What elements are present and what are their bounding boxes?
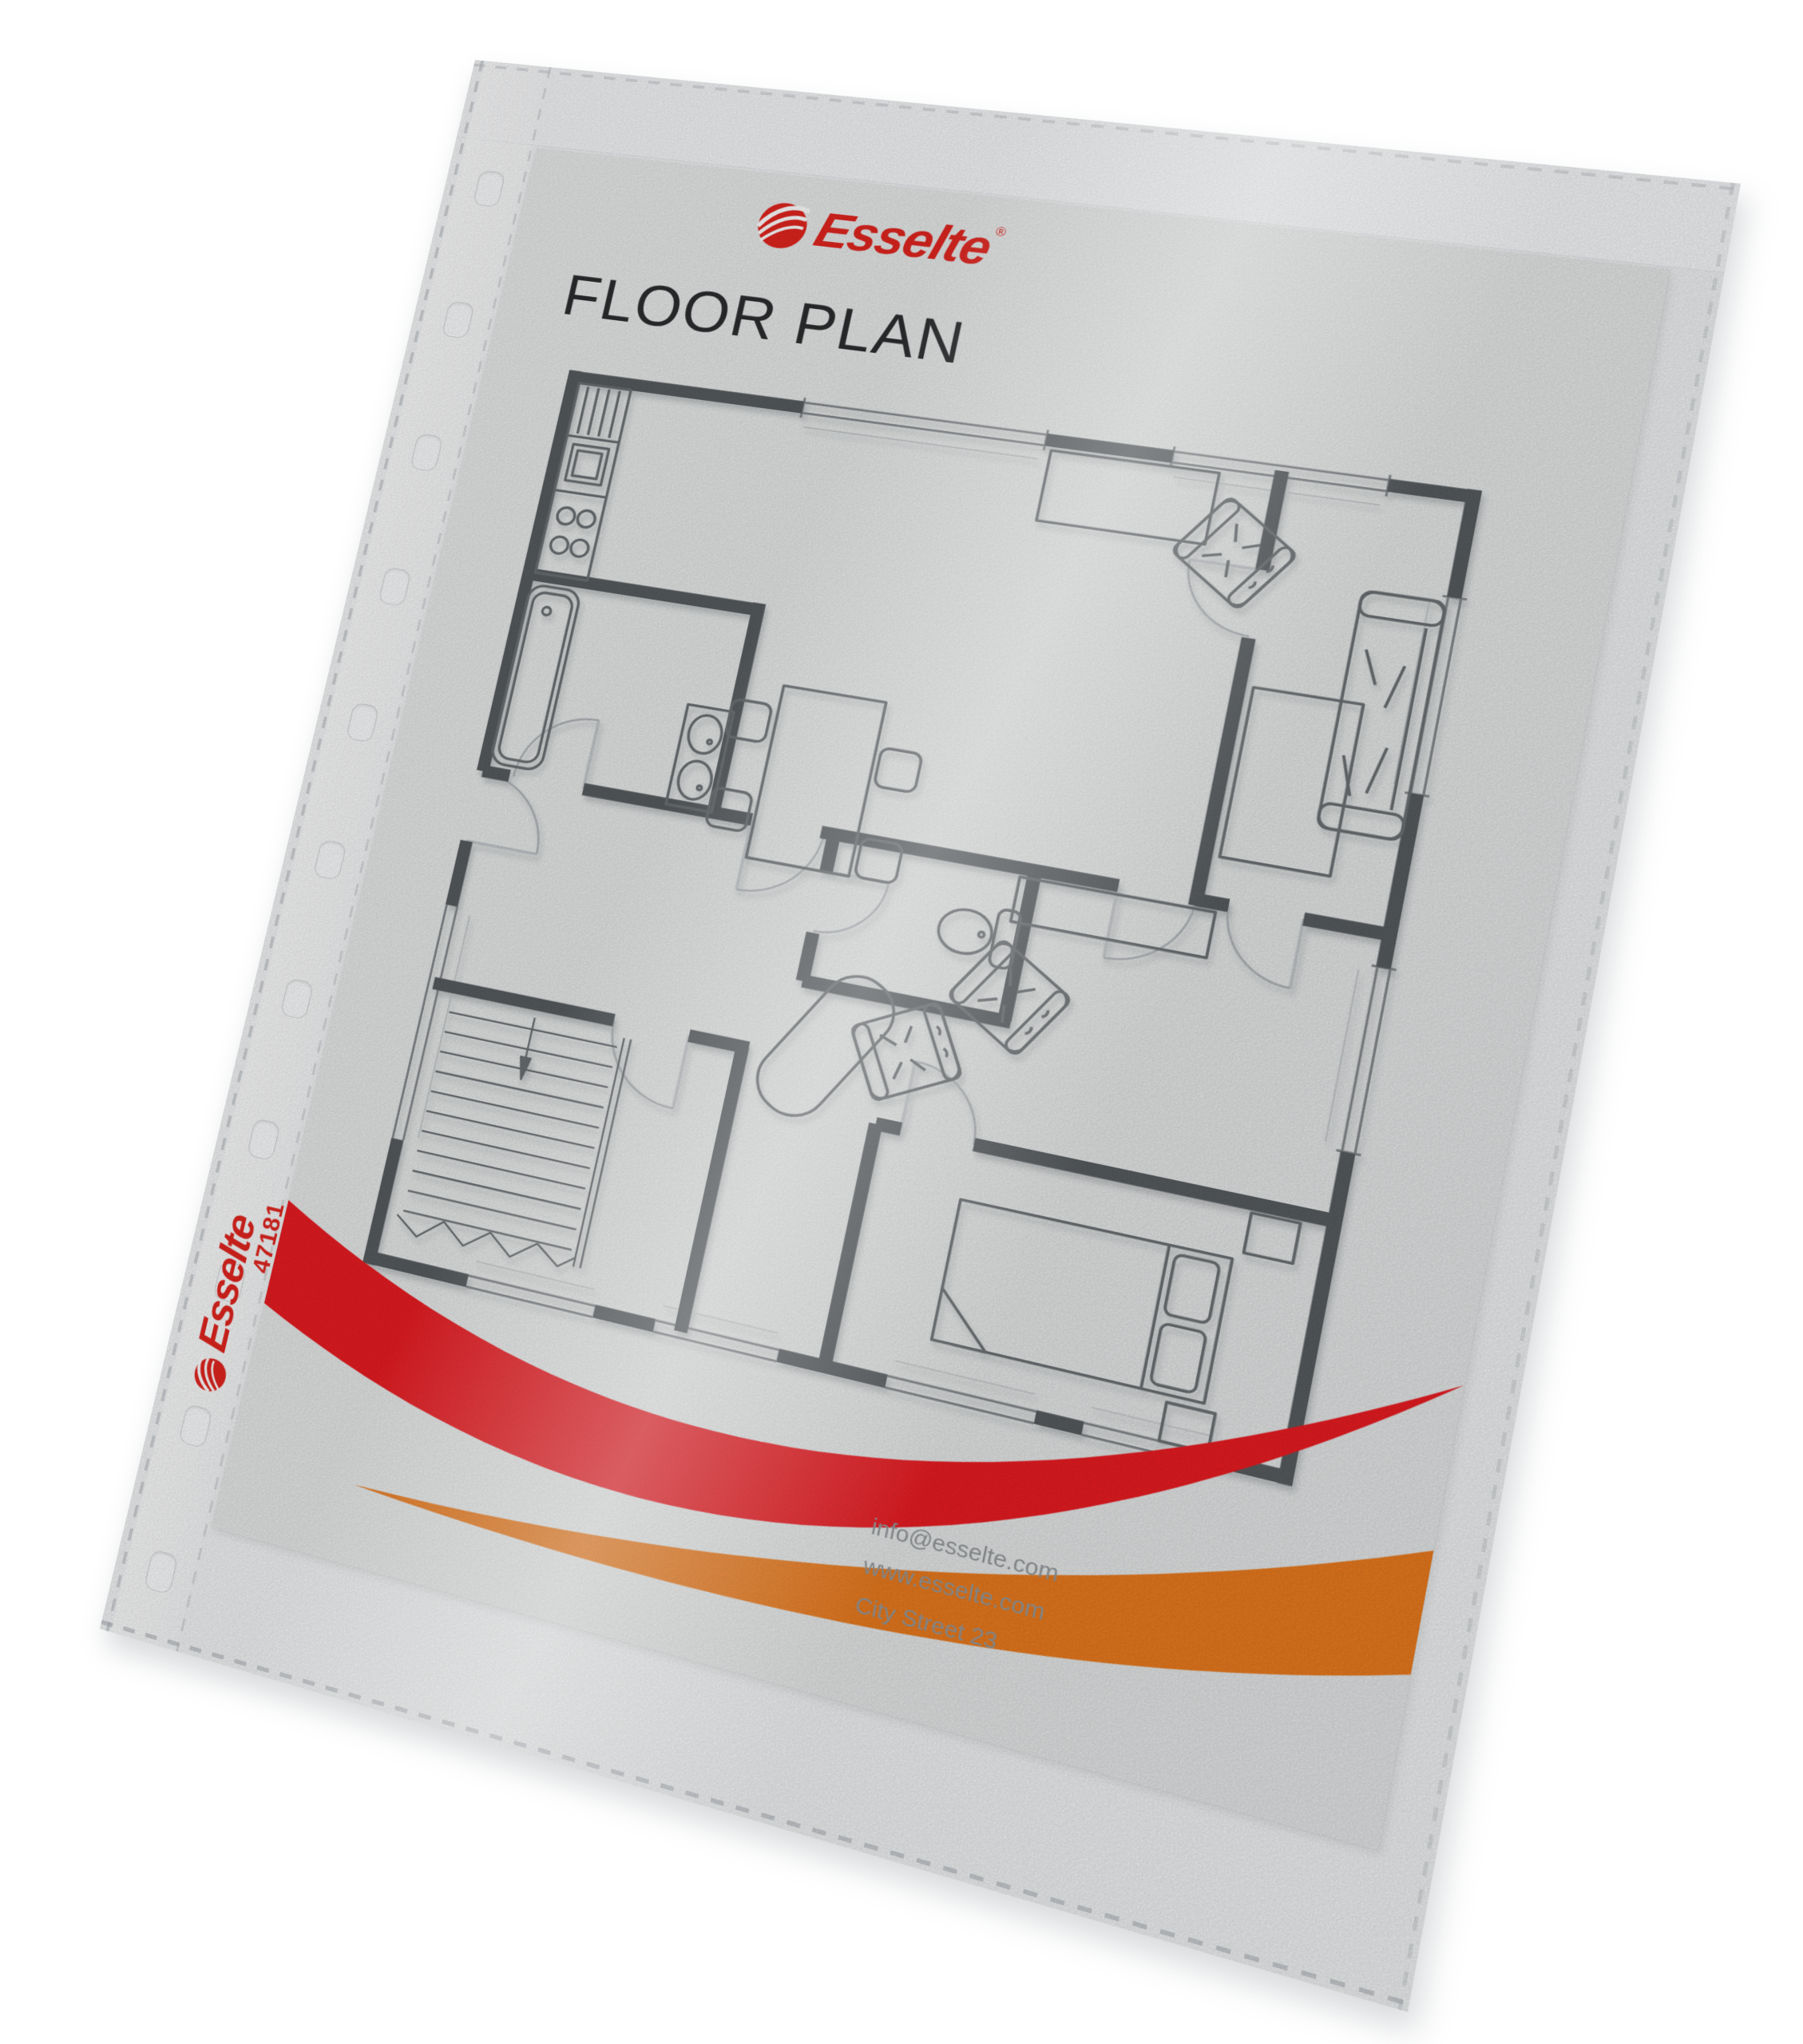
toilet-icon [933, 898, 1021, 969]
sideboard-icons [954, 450, 1404, 977]
registered-trademark-symbol: ® [994, 226, 1007, 241]
kitchen-stove-icon [554, 490, 606, 498]
product-photo-stage: Esselte ® FLOOR PLAN [0, 0, 1803, 2044]
esselte-logo: Esselte ® [751, 198, 1007, 275]
sheet-protector-sleeve: Esselte ® FLOOR PLAN [100, 60, 1741, 2012]
nightstand-icon [1244, 1213, 1301, 1263]
esselte-wordmark: Esselte [809, 205, 997, 272]
esselte-logo-icon [751, 198, 814, 253]
sleeve-print-brand: Esselte [189, 1209, 265, 1358]
